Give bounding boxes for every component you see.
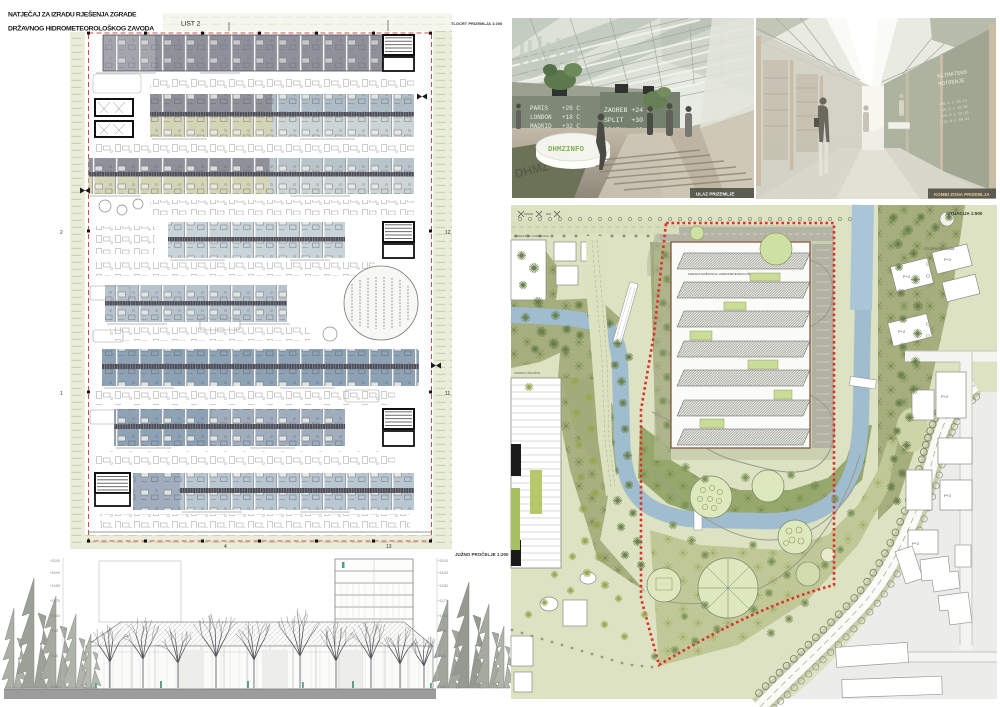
svg-text:ZAJEDNIČKI SABIRNJAK: ZAJEDNIČKI SABIRNJAK <box>514 233 549 238</box>
svg-text:+26 C: +26 C <box>562 105 580 112</box>
svg-text:LIST 2: LIST 2 <box>181 21 201 28</box>
svg-text:NATJEČAJ ZA IZRADU RJEŠENJA ZG: NATJEČAJ ZA IZRADU RJEŠENJA ZGRADE <box>8 10 137 19</box>
svg-text:1: 1 <box>60 391 63 397</box>
svg-text:+10.00: +10.00 <box>438 614 448 618</box>
svg-text:11: 11 <box>445 391 450 397</box>
svg-text:+16.00: +16.00 <box>438 571 448 575</box>
svg-text:TLOCRT PRIZEMLJA 1:200: TLOCRT PRIZEMLJA 1:200 <box>451 21 503 26</box>
svg-text:PARIS: PARIS <box>530 105 548 112</box>
svg-text:LONDON: LONDON <box>530 114 552 121</box>
svg-text:DRŽAVNOG HIDROMETEOROLOŠKOG ZA: DRŽAVNOG HIDROMETEOROLOŠKOG ZAVODA <box>8 24 154 33</box>
svg-text:VISOKO UČILIŠTE: VISOKO UČILIŠTE <box>514 370 540 375</box>
svg-text:+11.75: +11.75 <box>438 599 448 603</box>
svg-text:13: 13 <box>386 544 392 550</box>
svg-text:P+2: P+2 <box>944 257 952 262</box>
svg-text:4: 4 <box>224 544 227 550</box>
svg-text:+10.00: +10.00 <box>50 614 60 618</box>
svg-text:+18 C: +18 C <box>562 114 580 121</box>
svg-text:P+2: P+2 <box>898 329 906 334</box>
svg-text:KOMBI ZONA PRIZEMLJA: KOMBI ZONA PRIZEMLJA <box>934 192 990 197</box>
svg-text:+0.00: +0.00 <box>50 685 58 689</box>
svg-text:P+2: P+2 <box>912 541 920 546</box>
svg-text:+4.20: +4.20 <box>50 654 58 658</box>
svg-text:ULAZ PRIZEMLJE: ULAZ PRIZEMLJE <box>696 192 735 197</box>
svg-text:SITUACIJA 1:500: SITUACIJA 1:500 <box>946 211 983 216</box>
svg-text:P+2: P+2 <box>941 394 949 399</box>
svg-text:+20.00: +20.00 <box>438 559 448 563</box>
svg-text:+7.45: +7.45 <box>50 629 58 633</box>
svg-text:+20.00: +20.00 <box>50 559 60 563</box>
svg-text:2: 2 <box>60 230 63 236</box>
svg-text:P+2: P+2 <box>903 274 911 279</box>
svg-text:+0.00: +0.00 <box>438 685 446 689</box>
svg-text:+7.45: +7.45 <box>438 629 446 633</box>
svg-text:12: 12 <box>445 230 451 236</box>
svg-text:SPLIT +30 C: SPLIT +30 C <box>604 117 651 124</box>
svg-text:+16.00: +16.00 <box>50 571 60 575</box>
svg-text:P+2: P+2 <box>944 493 952 498</box>
svg-text:+13.80: +13.80 <box>438 584 448 588</box>
svg-text:ZAGREB +24 C: ZAGREB +24 C <box>604 107 651 114</box>
svg-text:+13.80: +13.80 <box>50 584 60 588</box>
svg-text:+11.75: +11.75 <box>50 599 60 603</box>
svg-text:JUŽNO PROČELJE 1:200: JUŽNO PROČELJE 1:200 <box>455 550 509 557</box>
svg-text:+4.20: +4.20 <box>438 654 446 658</box>
svg-text:DHMZINFO: DHMZINFO <box>548 146 585 154</box>
svg-text:STUDENTSKI DOM: STUDENTSKI DOM <box>924 247 955 251</box>
